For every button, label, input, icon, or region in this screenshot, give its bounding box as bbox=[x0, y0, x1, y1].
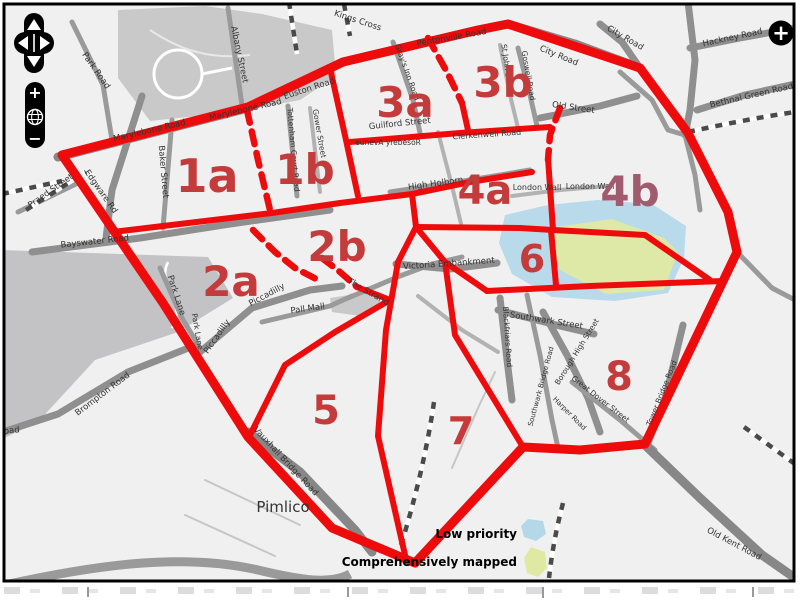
street-label: eunevA yrebesoR bbox=[355, 138, 421, 147]
zoom-in-button[interactable]: + bbox=[28, 83, 41, 102]
zone-label-3a: 3a bbox=[376, 78, 434, 127]
street-label: London Wall bbox=[513, 183, 562, 192]
add-button[interactable]: + bbox=[769, 21, 794, 46]
zone-label-5: 5 bbox=[312, 388, 340, 434]
legend-mapped-label: Comprehensively mapped bbox=[342, 555, 517, 569]
zone-label-6: 6 bbox=[519, 237, 545, 281]
zoom-control[interactable]: + − bbox=[25, 82, 45, 148]
street-label: Pimlico bbox=[256, 498, 309, 516]
zone-label-4b: 4b bbox=[600, 167, 659, 216]
zone-label-8: 8 bbox=[605, 354, 633, 400]
zone-label-4a: 4a bbox=[458, 168, 513, 214]
legend-low-priority-label: Low priority bbox=[435, 527, 517, 541]
zone-label-7: 7 bbox=[448, 409, 474, 453]
svg-text:+[interactable]: + bbox=[772, 21, 790, 45]
street-label: oad bbox=[3, 425, 20, 437]
zone-label-2a: 2a bbox=[202, 257, 260, 306]
zone-label-1b: 1b bbox=[275, 145, 334, 194]
bottom-strip bbox=[4, 587, 796, 599]
map-viewport: Park RoadAlbany StreetKings CrossPentonv… bbox=[0, 0, 800, 600]
zoom-out-button[interactable]: − bbox=[28, 129, 41, 148]
zone-label-1a: 1a bbox=[175, 149, 238, 203]
zone-label-3b: 3b bbox=[473, 58, 532, 107]
map-canvas[interactable]: Park RoadAlbany StreetKings CrossPentonv… bbox=[0, 0, 800, 600]
zone-label-2b: 2b bbox=[307, 222, 366, 271]
